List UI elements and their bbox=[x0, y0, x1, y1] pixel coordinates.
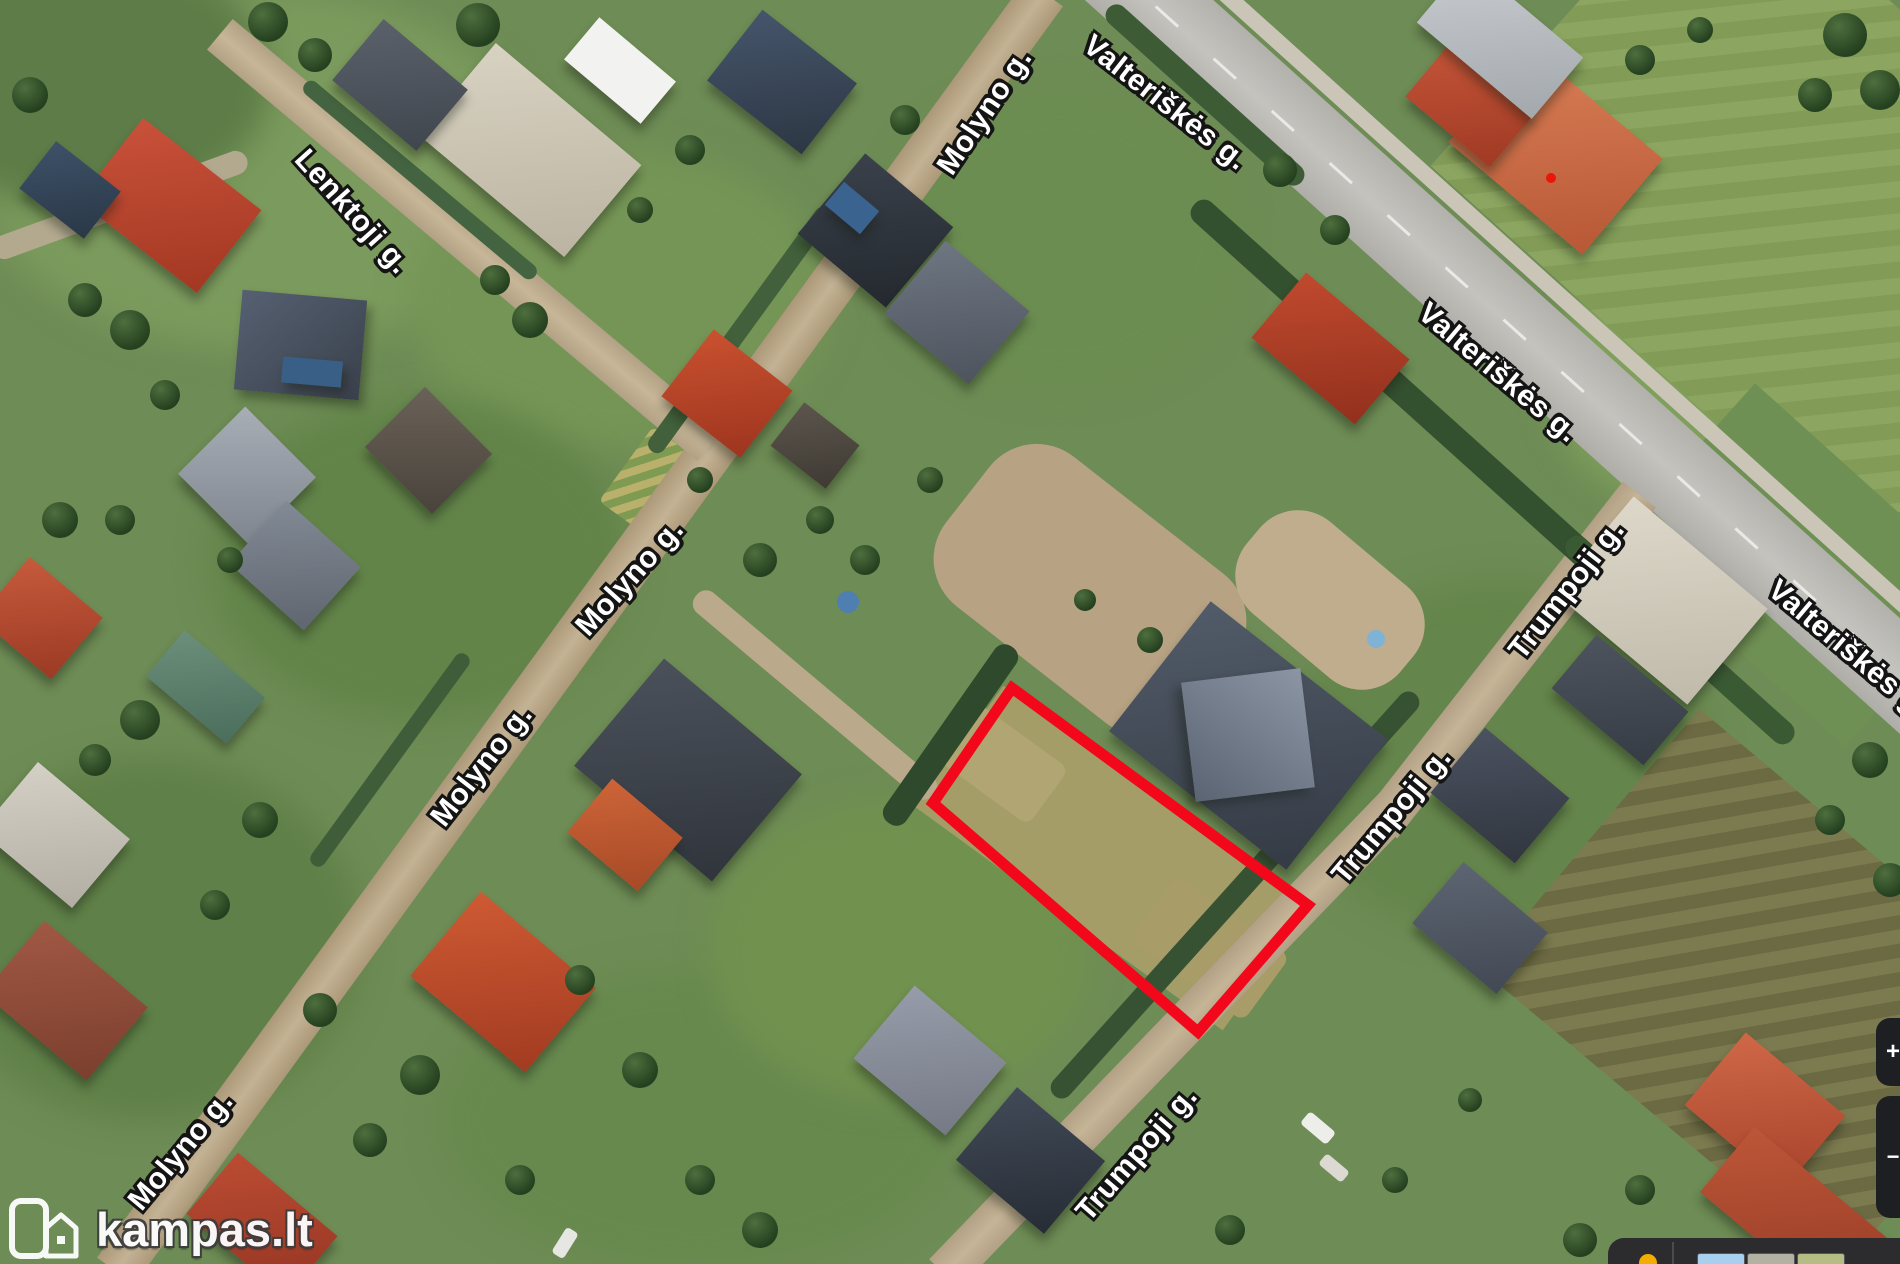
tree bbox=[1074, 589, 1096, 611]
map-scene bbox=[0, 0, 1900, 1264]
tree bbox=[1687, 17, 1713, 43]
tree bbox=[1563, 1223, 1597, 1257]
layer-thumbnail-satellite[interactable] bbox=[1797, 1253, 1845, 1264]
kampas-watermark: kampas.lt bbox=[8, 1198, 313, 1260]
tree bbox=[806, 506, 834, 534]
layer-thumbnail-map[interactable] bbox=[1697, 1253, 1745, 1264]
kampas-logo-text: kampas.lt bbox=[96, 1202, 313, 1257]
tree bbox=[850, 545, 880, 575]
tree bbox=[687, 467, 713, 493]
tree bbox=[110, 310, 150, 350]
tree bbox=[1860, 70, 1900, 110]
tree bbox=[242, 802, 278, 838]
tree bbox=[79, 744, 111, 776]
tree bbox=[105, 505, 135, 535]
tree bbox=[217, 547, 243, 573]
tree bbox=[627, 197, 653, 223]
tree bbox=[1382, 1167, 1408, 1193]
satellite-map[interactable]: Lenktoji g. Molyno g. Valteriškės g. Val… bbox=[0, 0, 1900, 1264]
tree bbox=[505, 1165, 535, 1195]
pool bbox=[837, 591, 859, 613]
map-layer-bar bbox=[1608, 1238, 1900, 1264]
kampas-logo-icon bbox=[8, 1198, 80, 1260]
tree bbox=[480, 265, 510, 295]
roof-facet bbox=[1181, 668, 1315, 802]
tree bbox=[400, 1055, 440, 1095]
tree bbox=[456, 3, 500, 47]
tree bbox=[1852, 742, 1888, 778]
tree bbox=[742, 1212, 778, 1248]
zoom-out-button[interactable]: − bbox=[1876, 1096, 1900, 1218]
zoom-in-button[interactable]: + bbox=[1876, 1018, 1900, 1086]
layer-thumbnail-terrain[interactable] bbox=[1747, 1253, 1795, 1264]
tree bbox=[303, 993, 337, 1027]
tree bbox=[1815, 805, 1845, 835]
tree bbox=[42, 502, 78, 538]
tree bbox=[675, 135, 705, 165]
tree bbox=[622, 1052, 658, 1088]
tree bbox=[1458, 1088, 1482, 1112]
tree bbox=[1625, 45, 1655, 75]
pool bbox=[1367, 630, 1385, 648]
tree bbox=[1798, 78, 1832, 112]
map-pin-icon[interactable] bbox=[1639, 1254, 1657, 1264]
tree bbox=[248, 2, 288, 42]
tree bbox=[1263, 153, 1297, 187]
tree bbox=[512, 302, 548, 338]
tree bbox=[890, 105, 920, 135]
marker-dot bbox=[1546, 173, 1556, 183]
layer-bar-divider bbox=[1672, 1242, 1674, 1264]
tree bbox=[917, 467, 943, 493]
house-dark-roof bbox=[770, 402, 859, 488]
tree bbox=[565, 965, 595, 995]
tree bbox=[150, 380, 180, 410]
tree bbox=[200, 890, 230, 920]
tree bbox=[743, 543, 777, 577]
house-red-roof bbox=[0, 557, 102, 679]
tree bbox=[120, 700, 160, 740]
tree bbox=[1137, 627, 1163, 653]
solar-panel bbox=[564, 17, 676, 123]
tree bbox=[1320, 215, 1350, 245]
tree bbox=[1873, 863, 1900, 897]
tree bbox=[1215, 1215, 1245, 1245]
house-solar bbox=[707, 10, 857, 155]
tree bbox=[68, 283, 102, 317]
tree bbox=[298, 38, 332, 72]
tree bbox=[353, 1123, 387, 1157]
solar-panel bbox=[281, 356, 343, 387]
tree bbox=[1823, 13, 1867, 57]
tree bbox=[12, 77, 48, 113]
vehicle bbox=[1300, 1111, 1336, 1145]
tree bbox=[685, 1165, 715, 1195]
vehicle bbox=[1318, 1153, 1350, 1183]
tree bbox=[1625, 1175, 1655, 1205]
